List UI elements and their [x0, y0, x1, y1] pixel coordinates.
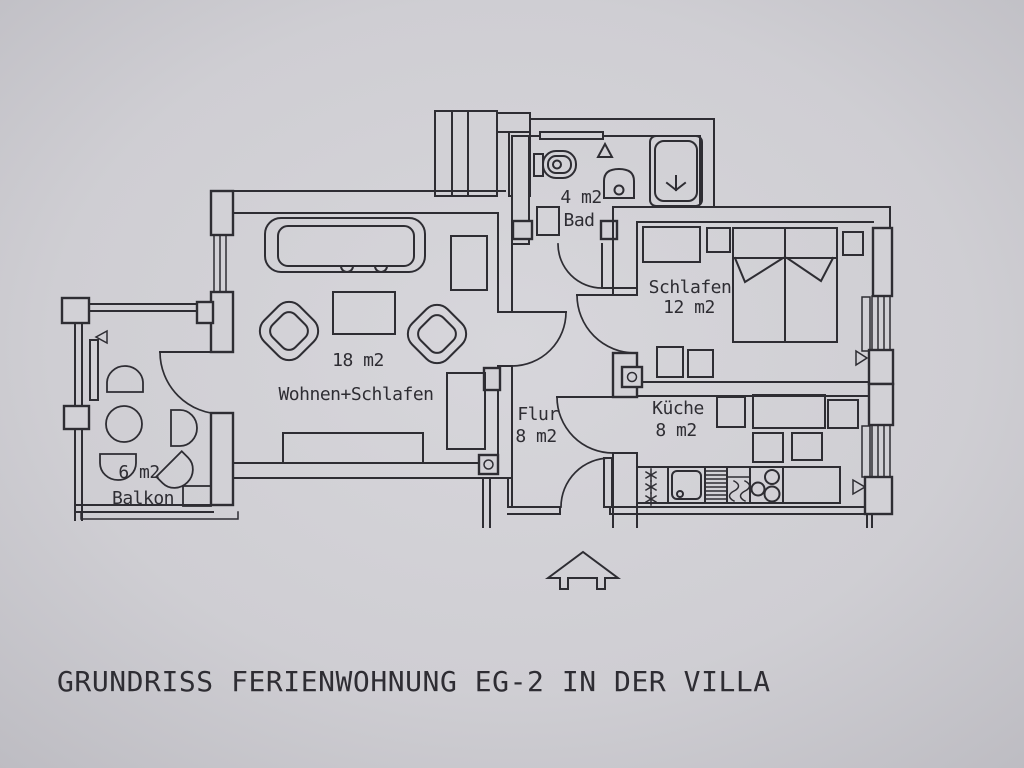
kueche-name-label: Küche — [652, 398, 704, 419]
wohnen-name-label: Wohnen+Schlafen — [278, 384, 433, 405]
balkon-area-label: 6 m2 — [118, 462, 159, 483]
wall-marker-living — [479, 455, 498, 474]
wall-marker-kitchen — [622, 367, 642, 387]
railing-post — [62, 298, 89, 323]
living-balcony-wall — [211, 413, 233, 505]
wohnen-area-label: 18 m2 — [332, 350, 384, 371]
kueche-area-label: 8 m2 — [655, 420, 696, 441]
bath-window-bar — [540, 132, 603, 139]
schlafen-name-label: Schlafen — [649, 277, 732, 298]
balkon-name-label: Balkon — [112, 488, 174, 509]
railing-panel — [90, 340, 98, 400]
drawing-title: GRUNDRISS FERIENWOHNUNG EG-2 IN DER VILL… — [57, 665, 771, 698]
flur-area-label: 8 m2 — [515, 426, 556, 447]
bad-area-label: 4 m2 — [560, 187, 601, 208]
entrance-door-panel — [604, 458, 612, 507]
schlafen-area-label: 12 m2 — [663, 297, 715, 318]
flur-name-label: Flur — [517, 404, 559, 425]
photographed-floor-plan: 4 m2 Bad Schlafen 12 m2 18 m2 Wohnen+Sch… — [0, 0, 1024, 768]
floor-plan: 4 m2 Bad Schlafen 12 m2 18 m2 Wohnen+Sch… — [0, 0, 1024, 768]
bad-name-label: Bad — [563, 210, 594, 231]
railing-post — [64, 406, 89, 429]
